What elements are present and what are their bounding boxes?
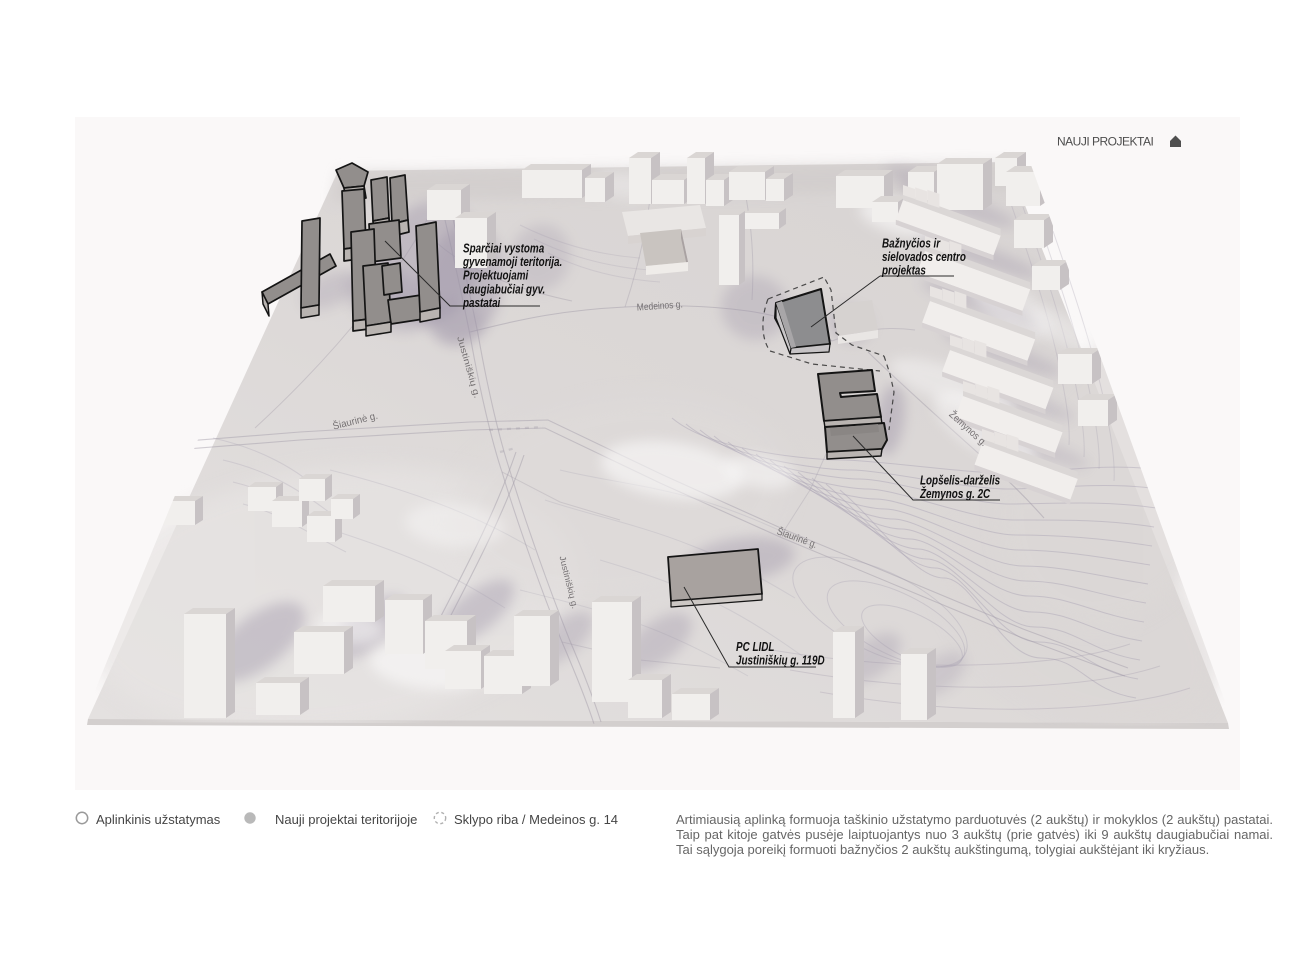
- svg-text:Justiniškių g. 119D: Justiniškių g. 119D: [736, 654, 825, 668]
- svg-text:daugiabučiai gyv.: daugiabučiai gyv.: [463, 283, 545, 297]
- svg-text:sielovados centro: sielovados centro: [882, 251, 966, 265]
- svg-text:Sparčiai vystoma: Sparčiai vystoma: [463, 242, 545, 256]
- svg-text:Bažnyčios ir: Bažnyčios ir: [882, 237, 941, 251]
- svg-text:Lopšelis-darželis: Lopšelis-darželis: [920, 474, 1001, 488]
- svg-text:projektas: projektas: [881, 265, 926, 279]
- svg-text:Projektuojami: Projektuojami: [463, 270, 529, 284]
- svg-text:NAUJI PROJEKTAI: NAUJI PROJEKTAI: [1057, 135, 1153, 149]
- svg-text:Žemynos g. 2C: Žemynos g. 2C: [919, 487, 991, 502]
- svg-text:pastatai: pastatai: [462, 297, 501, 311]
- svg-text:gyvenamoji teritorija.: gyvenamoji teritorija.: [462, 256, 562, 270]
- svg-text:PC LIDL: PC LIDL: [736, 641, 774, 655]
